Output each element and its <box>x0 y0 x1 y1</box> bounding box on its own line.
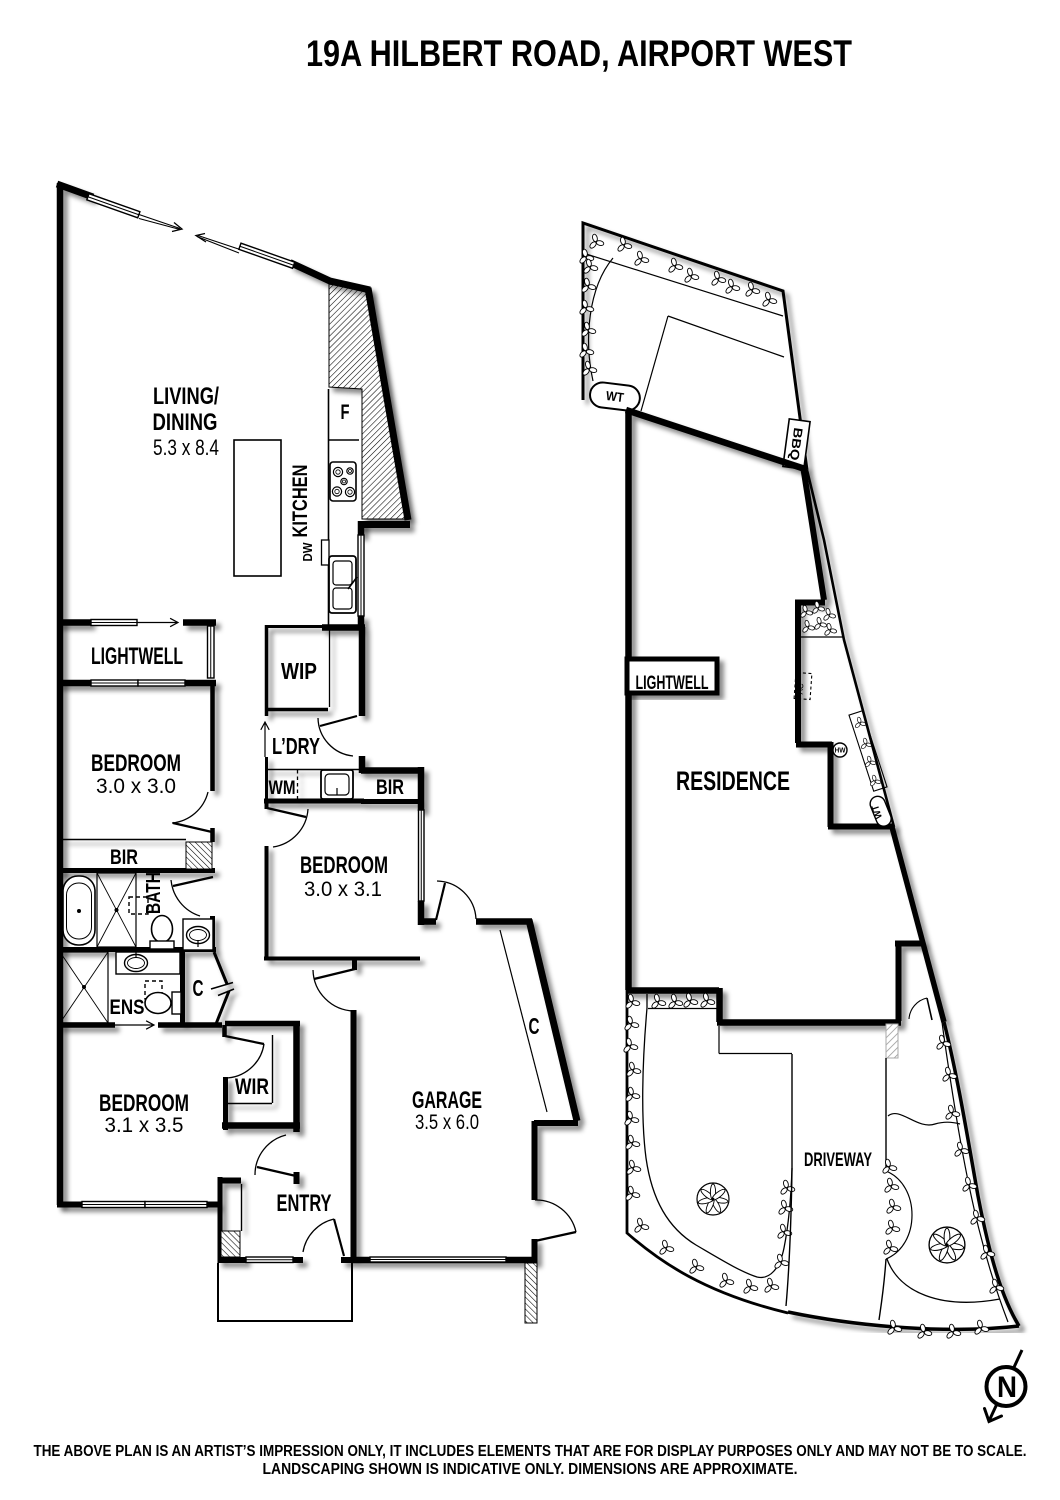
svg-text:ENS: ENS <box>110 996 145 1019</box>
svg-text:WIP: WIP <box>281 658 317 684</box>
svg-text:AC: AC <box>795 683 806 695</box>
svg-text:WM: WM <box>269 778 296 799</box>
svg-text:LANDSCAPING SHOWN IS INDICATIV: LANDSCAPING SHOWN IS INDICATIVE ONLY. DI… <box>263 1461 798 1478</box>
svg-text:F: F <box>341 401 350 424</box>
svg-text:C: C <box>529 1013 540 1039</box>
svg-text:N: N <box>997 1371 1017 1404</box>
svg-text:3.0 x 3.1: 3.0 x 3.1 <box>304 878 382 901</box>
svg-text:BEDROOM: BEDROOM <box>91 750 181 777</box>
svg-text:KITCHEN: KITCHEN <box>288 465 312 538</box>
svg-text:WT: WT <box>605 388 625 405</box>
svg-text:3.1 x 3.5: 3.1 x 3.5 <box>105 1114 184 1137</box>
svg-text:BIR: BIR <box>376 776 404 799</box>
svg-text:DW: DW <box>301 542 315 561</box>
svg-text:LIGHTWELL: LIGHTWELL <box>91 643 183 670</box>
svg-text:19A HILBERT ROAD, AIRPORT WEST: 19A HILBERT ROAD, AIRPORT WEST <box>306 33 852 74</box>
svg-text:RESIDENCE: RESIDENCE <box>676 766 790 796</box>
svg-text:3.0 x 3.0: 3.0 x 3.0 <box>96 775 176 798</box>
svg-text:C: C <box>193 975 204 1001</box>
svg-text:HW: HW <box>835 748 846 755</box>
svg-text:GARAGE: GARAGE <box>412 1087 482 1114</box>
svg-text:L’DRY: L’DRY <box>272 733 320 759</box>
svg-text:DRIVEWAY: DRIVEWAY <box>804 1150 872 1171</box>
svg-text:BIR: BIR <box>110 846 138 869</box>
svg-text:WIR: WIR <box>235 1074 269 1099</box>
svg-text:BEDROOM: BEDROOM <box>99 1090 189 1117</box>
svg-text:BATH: BATH <box>143 872 165 914</box>
svg-text:5.3 x 8.4: 5.3 x 8.4 <box>153 435 219 460</box>
svg-text:LIGHTWELL: LIGHTWELL <box>636 673 709 694</box>
svg-text:DINING: DINING <box>153 409 218 436</box>
svg-text:THE ABOVE PLAN IS AN ARTIST’S: THE ABOVE PLAN IS AN ARTIST’S IMPRESSION… <box>34 1443 1027 1460</box>
svg-text:3.5 x 6.0: 3.5 x 6.0 <box>415 1111 479 1134</box>
svg-text:LIVING/: LIVING/ <box>153 383 219 410</box>
svg-text:BEDROOM: BEDROOM <box>300 852 388 879</box>
svg-text:ENTRY: ENTRY <box>277 1190 332 1217</box>
